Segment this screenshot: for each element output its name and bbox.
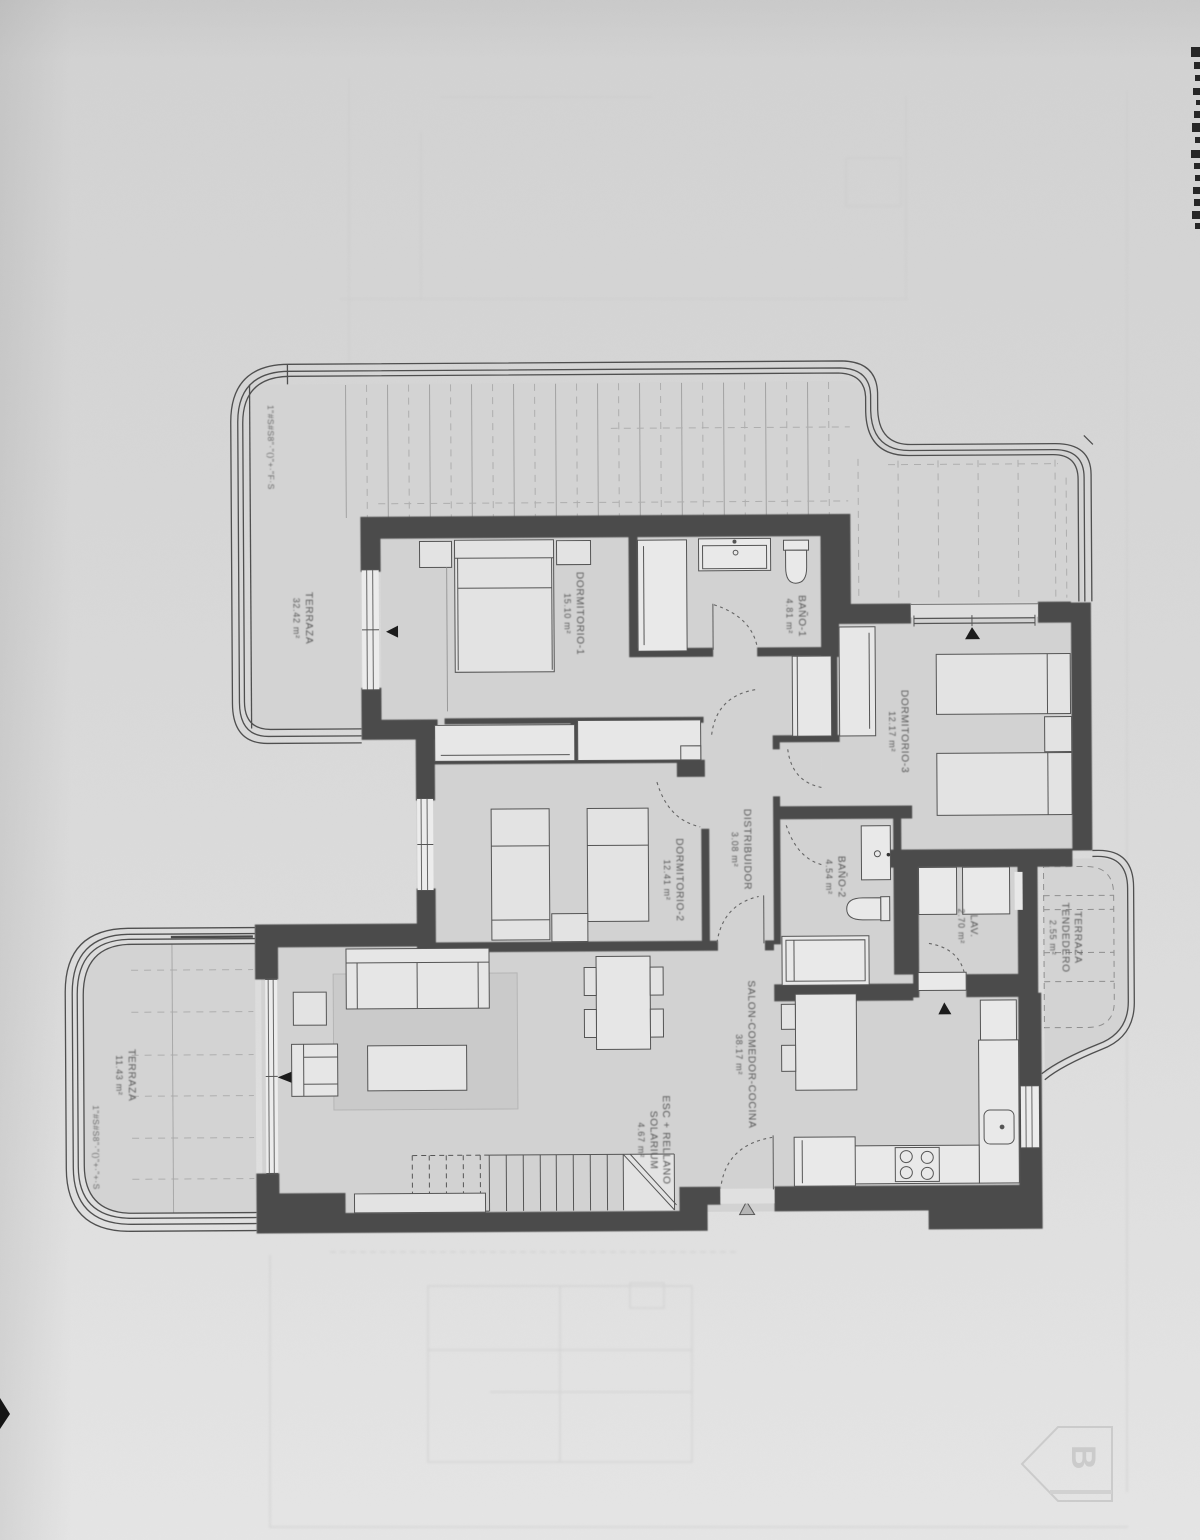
svg-text:1"#S#S8"·"()"+·"F·S: 1"#S#S8"·"()"+·"F·S xyxy=(266,405,277,490)
svg-text:1"#S#S8"·"()"+·"+·S: 1"#S#S8"·"()"+·"+·S xyxy=(91,1105,102,1190)
svg-text:BAÑO-24.54 m²: BAÑO-24.54 m² xyxy=(824,856,849,898)
svg-text:B: B xyxy=(1064,1445,1102,1470)
svg-text:BAÑO-14.81 m²: BAÑO-14.81 m² xyxy=(784,595,809,637)
